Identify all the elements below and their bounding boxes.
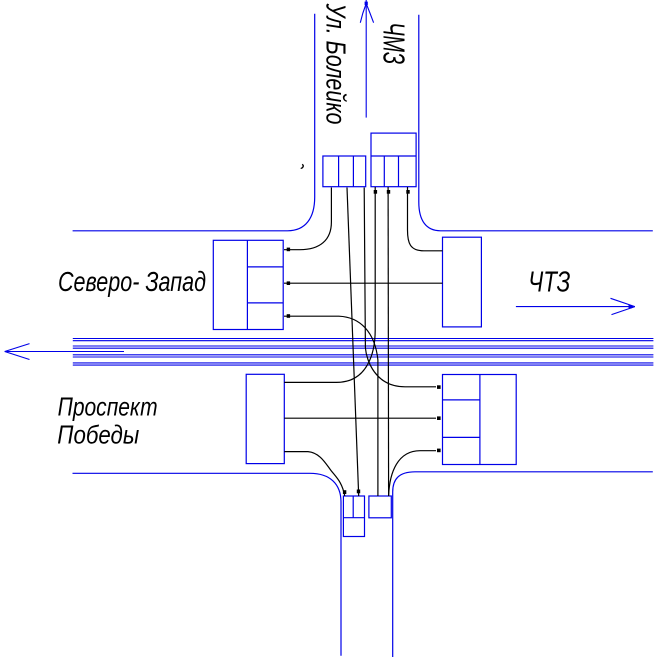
svg-text:ЧМЗ: ЧМЗ xyxy=(376,22,411,64)
svg-text:Ул. Болейко: Ул. Болейко xyxy=(321,3,352,125)
svg-text:Северо- Запад: Северо- Запад xyxy=(58,266,206,297)
svg-text:Победы: Победы xyxy=(57,420,139,450)
svg-text:ЧТЗ: ЧТЗ xyxy=(528,267,570,299)
svg-text:Проспект: Проспект xyxy=(58,391,158,421)
